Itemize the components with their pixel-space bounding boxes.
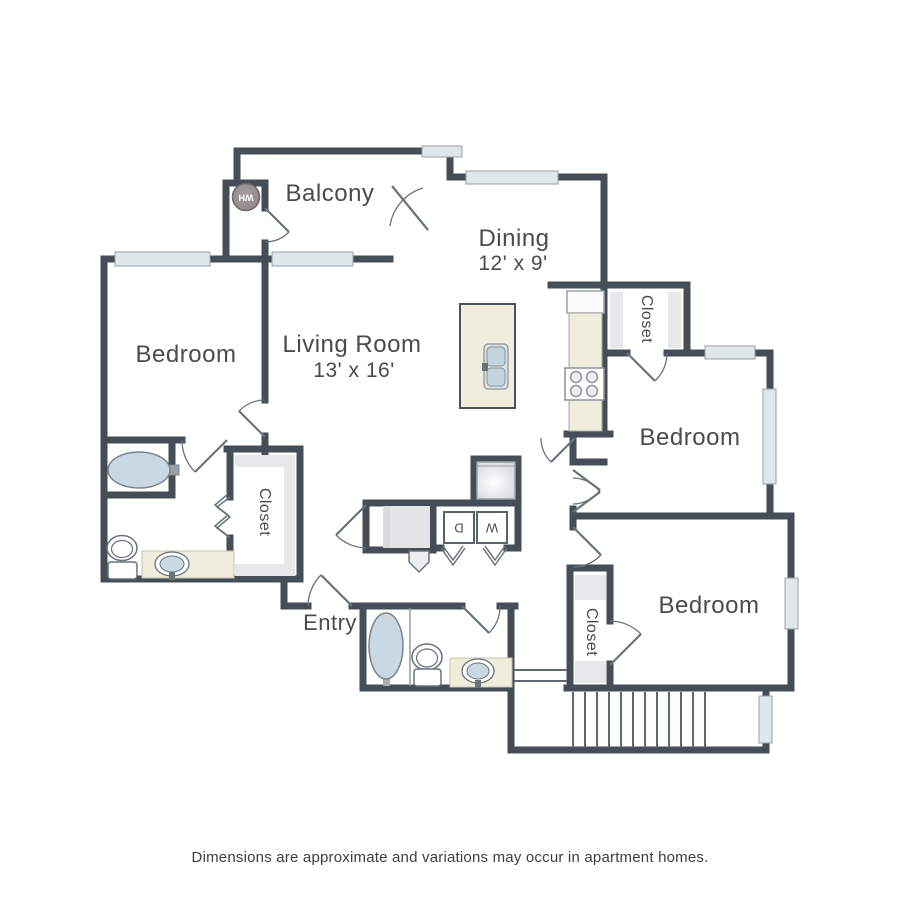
entry-label: Entry: [303, 610, 357, 635]
door: [627, 353, 667, 381]
shower-tub: [369, 613, 403, 686]
closet-bottom-right-label: Closet: [583, 608, 600, 656]
door: [390, 186, 428, 230]
door: [573, 478, 600, 512]
toilet: [107, 536, 137, 580]
island-sink: [482, 344, 508, 389]
washer: W: [477, 512, 507, 543]
door: [308, 575, 352, 606]
door: [182, 440, 227, 472]
bedroom-top-right-label: Bedroom: [640, 424, 741, 451]
floor-plan-drawing: D W: [0, 0, 900, 900]
bifold-doors: [441, 546, 507, 565]
door: [610, 621, 641, 665]
bedroom-bottom-right-label: Bedroom: [659, 592, 760, 619]
door: [336, 505, 366, 548]
dining-dimensions: 12' x 9': [478, 252, 547, 275]
door: [573, 527, 601, 567]
living-room-label: Living Room: [283, 331, 422, 358]
dining-label: Dining: [478, 225, 549, 252]
closet-hall-label: Closet: [256, 488, 273, 536]
hall-bathroom: [107, 452, 234, 580]
living-room-dimensions: 13' x 16': [313, 359, 394, 382]
vanity-sink: [142, 551, 234, 580]
cabinet-flap-door: [409, 551, 429, 572]
shower-stall: [477, 462, 515, 499]
stair-railing: [514, 670, 567, 681]
refrigerator: [567, 291, 604, 313]
floor-plan-page: D W: [0, 0, 900, 900]
water-heater: WH: [233, 184, 260, 211]
door: [239, 400, 265, 437]
entry-bathroom: [369, 608, 512, 688]
bathtub: [108, 452, 179, 488]
toilet: [412, 644, 442, 686]
stove: [565, 368, 604, 400]
dryer-label: D: [454, 521, 463, 536]
washer-label: W: [485, 521, 498, 536]
dryer: D: [444, 512, 474, 543]
door: [265, 208, 289, 242]
door: [462, 606, 500, 633]
staircase: [573, 692, 705, 747]
water-heater-label: WH: [239, 193, 254, 203]
closet-top-right-label: Closet: [638, 295, 655, 343]
kitchen: [460, 291, 604, 431]
bedroom-left-label: Bedroom: [136, 341, 237, 368]
balcony-label: Balcony: [286, 180, 375, 207]
disclaimer-text: Dimensions are approximate and variation…: [192, 849, 709, 866]
closet-bifold-door: [215, 494, 230, 538]
kitchen-island: [460, 304, 515, 408]
vanity-sink: [450, 658, 512, 688]
